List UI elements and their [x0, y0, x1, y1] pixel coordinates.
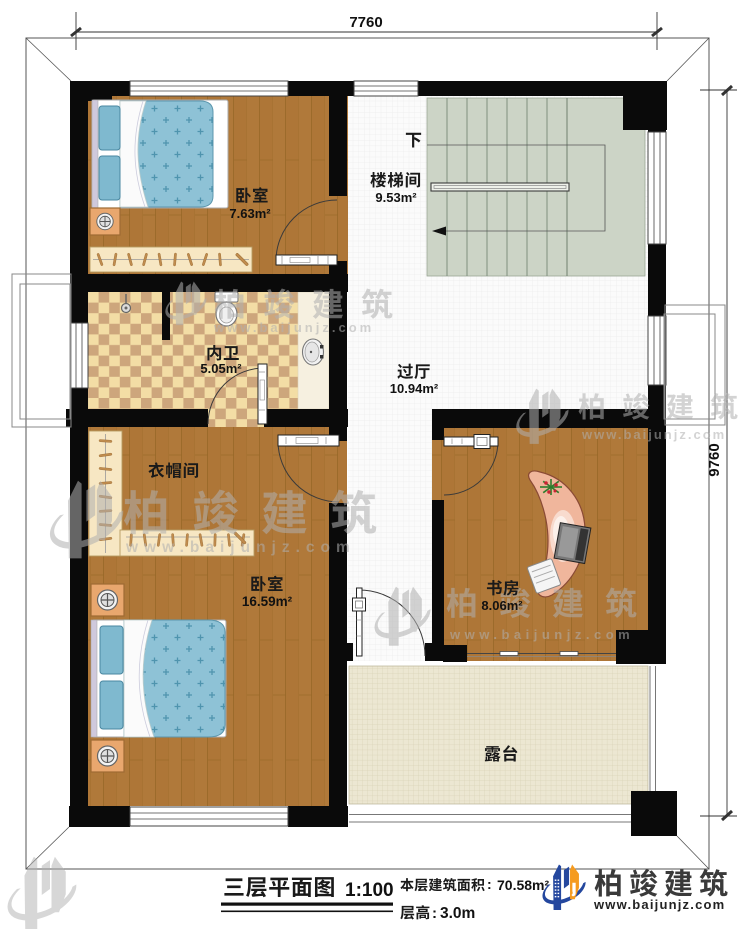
- svg-text:www.baijunjz.com: www.baijunjz.com: [125, 539, 356, 556]
- svg-text:1:100: 1:100: [345, 880, 394, 901]
- svg-text:3.0m: 3.0m: [440, 905, 475, 922]
- svg-text:www.baijunjz.com: www.baijunjz.com: [581, 427, 726, 442]
- svg-text:16.59m²: 16.59m²: [242, 594, 293, 609]
- svg-text:7760: 7760: [349, 14, 382, 31]
- svg-text:www.baijunjz.com: www.baijunjz.com: [449, 627, 634, 642]
- svg-text:70.58m²: 70.58m²: [497, 877, 549, 893]
- svg-text:9.53m²: 9.53m²: [375, 190, 417, 205]
- svg-text:www.baijunjz.com: www.baijunjz.com: [593, 897, 725, 912]
- svg-text:5.05m²: 5.05m²: [200, 361, 242, 376]
- svg-text:www.baijunjz.com: www.baijunjz.com: [213, 320, 374, 335]
- svg-text:7.63m²: 7.63m²: [229, 206, 271, 221]
- svg-text::: :: [487, 876, 492, 892]
- svg-text:9760: 9760: [706, 443, 723, 476]
- svg-text::: :: [432, 905, 437, 922]
- svg-text:10.94m²: 10.94m²: [390, 381, 439, 396]
- svg-text:8.06m²: 8.06m²: [481, 598, 523, 613]
